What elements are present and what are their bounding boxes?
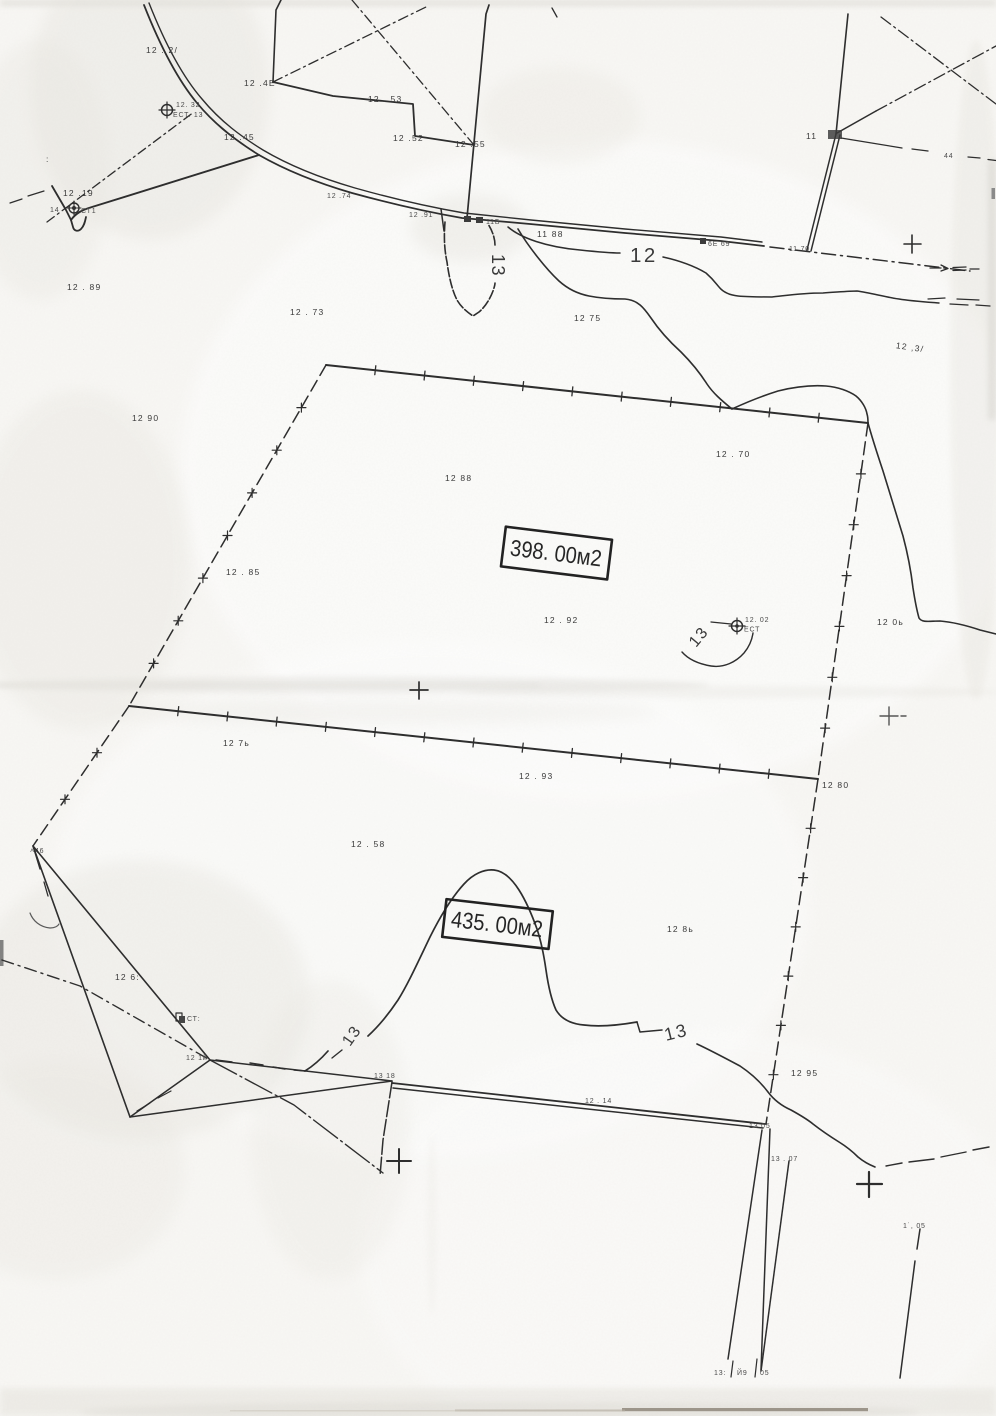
svg-text:12 . 93: 12 . 93 (519, 771, 553, 781)
svg-text:13 18: 13 18 (374, 1073, 396, 1080)
svg-text:12 80: 12 80 (822, 780, 849, 790)
svg-text:11 88: 11 88 (537, 229, 564, 239)
svg-text:12. 32: 12. 32 (176, 102, 200, 109)
svg-text:12 . 14: 12 . 14 (585, 1098, 612, 1105)
svg-text:12 8ь: 12 8ь (667, 924, 694, 934)
svg-text:12 .45: 12 .45 (224, 132, 255, 142)
svg-text:12 .4Е: 12 .4Е (244, 78, 276, 88)
svg-text:СТ:: СТ: (187, 1016, 200, 1023)
svg-text:12 .91: 12 .91 (409, 212, 433, 219)
svg-text:12 0ь: 12 0ь (877, 617, 904, 627)
svg-text:13: 13 (488, 254, 508, 277)
svg-text:05: 05 (760, 1370, 769, 1377)
svg-text:12 1й: 12 1й (186, 1054, 208, 1062)
svg-text:Й9: Й9 (737, 1368, 748, 1377)
svg-text:12 . 92: 12 . 92 (544, 615, 578, 625)
svg-text:11Б: 11Б (486, 219, 500, 226)
svg-text:12 . 85: 12 . 85 (226, 567, 260, 577)
svg-text:12 88: 12 88 (445, 473, 472, 483)
svg-text:14: 14 (50, 207, 59, 214)
svg-text:12 7ь: 12 7ь (223, 738, 250, 748)
svg-text:13:: 13: (714, 1370, 726, 1377)
svg-text:12 .52: 12 .52 (393, 133, 424, 143)
svg-text:13 05: 13 05 (749, 1123, 771, 1130)
svg-text:13 . 07: 13 . 07 (771, 1156, 798, 1163)
svg-text:12 . 2/: 12 . 2/ (146, 45, 178, 55)
svg-text:44: 44 (944, 153, 953, 160)
svg-text:12 75: 12 75 (574, 313, 601, 323)
svg-text:11 70: 11 70 (789, 246, 810, 253)
svg-text:11: 11 (806, 131, 817, 141)
svg-text:12 . 89: 12 . 89 (67, 282, 101, 292)
svg-text::: : (46, 154, 50, 164)
svg-text:12 . 73: 12 . 73 (290, 307, 324, 317)
svg-text:12: 12 (630, 244, 658, 267)
svg-text:12 95: 12 95 (791, 1068, 818, 1078)
svg-text:12. 02: 12. 02 (745, 617, 769, 624)
svg-text:12 . 58: 12 . 58 (351, 839, 385, 849)
svg-text:6Е 69: 6Е 69 (708, 241, 730, 248)
svg-text:12 . 70: 12 . 70 (716, 449, 750, 459)
svg-text:ЕСТ: ЕСТ (744, 627, 760, 634)
svg-text:1˙, 05: 1˙, 05 (903, 1222, 926, 1230)
svg-text:12 .74: 12 .74 (327, 193, 351, 200)
svg-text:12 .19: 12 .19 (63, 188, 94, 198)
svg-text:ЕСТ. 13: ЕСТ. 13 (173, 112, 203, 119)
svg-text:12 90: 12 90 (132, 413, 159, 423)
svg-text:12 . 53: 12 . 53 (368, 94, 402, 104)
svg-text:СТ1: СТ1 (81, 208, 96, 215)
svg-text:12 6:: 12 6: (115, 972, 140, 982)
